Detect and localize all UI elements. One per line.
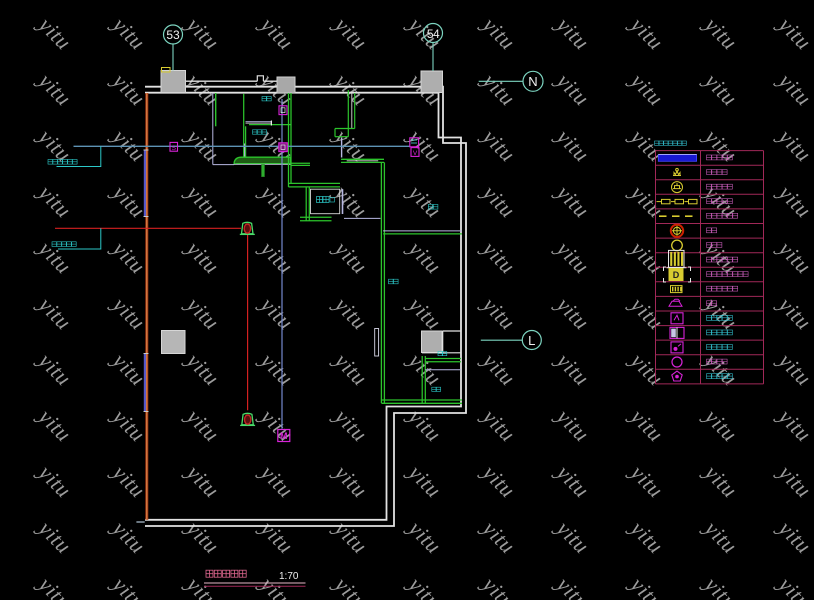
svg-text:yitu: yitu [33, 514, 77, 558]
svg-text:yitu: yitu [477, 11, 521, 55]
svg-text:D: D [673, 270, 680, 280]
svg-text:S: S [172, 145, 177, 152]
svg-text:yitu: yitu [33, 235, 77, 279]
svg-text:M: M [280, 431, 288, 441]
svg-text:yitu: yitu [625, 570, 669, 600]
svg-text:yitu: yitu [699, 67, 743, 111]
svg-text:yitu: yitu [329, 458, 373, 502]
svg-text:yitu: yitu [625, 458, 669, 502]
svg-text:yitu: yitu [699, 235, 743, 279]
svg-text:yitu: yitu [329, 291, 373, 335]
svg-text:53: 53 [166, 28, 180, 42]
svg-text:yitu: yitu [551, 123, 595, 167]
svg-text:yitu: yitu [255, 346, 299, 390]
svg-text:yitu: yitu [107, 570, 151, 600]
svg-text:yitu: yitu [403, 514, 447, 558]
svg-text:yitu: yitu [403, 123, 447, 167]
svg-text:yitu: yitu [403, 11, 447, 55]
svg-text:1:70: 1:70 [279, 571, 299, 582]
svg-text:yitu: yitu [33, 346, 77, 390]
svg-text:yitu: yitu [773, 402, 814, 446]
svg-text:yitu: yitu [107, 235, 151, 279]
svg-text:yitu: yitu [107, 458, 151, 502]
svg-text:yitu: yitu [403, 402, 447, 446]
svg-text:yitu: yitu [477, 235, 521, 279]
svg-text:yitu: yitu [773, 346, 814, 390]
svg-text:yitu: yitu [255, 179, 299, 223]
svg-text:yitu: yitu [107, 67, 151, 111]
svg-text:yitu: yitu [403, 179, 447, 223]
svg-text:yitu: yitu [625, 235, 669, 279]
svg-text:yitu: yitu [329, 570, 373, 600]
svg-text:yitu: yitu [551, 291, 595, 335]
svg-text:yitu: yitu [551, 402, 595, 446]
svg-text:yitu: yitu [551, 570, 595, 600]
svg-text:yitu: yitu [477, 402, 521, 446]
svg-text:yitu: yitu [329, 514, 373, 558]
svg-text:yitu: yitu [329, 235, 373, 279]
svg-text:yitu: yitu [329, 67, 373, 111]
svg-text:yitu: yitu [477, 570, 521, 600]
svg-text:yitu: yitu [477, 291, 521, 335]
svg-text:yitu: yitu [181, 402, 225, 446]
svg-text:yitu: yitu [33, 179, 77, 223]
svg-text:yitu: yitu [773, 67, 814, 111]
svg-text:yitu: yitu [33, 570, 77, 600]
svg-text:yitu: yitu [773, 570, 814, 600]
svg-text:yitu: yitu [403, 291, 447, 335]
svg-text:yitu: yitu [329, 11, 373, 55]
svg-text:yitu: yitu [699, 291, 743, 335]
svg-text:yitu: yitu [773, 514, 814, 558]
svg-text:yitu: yitu [551, 11, 595, 55]
svg-text:yitu: yitu [773, 458, 814, 502]
svg-text:yitu: yitu [773, 123, 814, 167]
svg-text:yitu: yitu [33, 11, 77, 55]
svg-text:54: 54 [427, 27, 440, 41]
svg-text:yitu: yitu [255, 291, 299, 335]
svg-text:yitu: yitu [477, 514, 521, 558]
svg-text:yitu: yitu [699, 458, 743, 502]
svg-text:yitu: yitu [551, 67, 595, 111]
svg-text:yitu: yitu [625, 11, 669, 55]
svg-text:yitu: yitu [551, 179, 595, 223]
svg-text:yitu: yitu [699, 402, 743, 446]
svg-text:yitu: yitu [551, 458, 595, 502]
svg-text:N: N [528, 74, 537, 89]
svg-text:yitu: yitu [255, 514, 299, 558]
svg-text:yitu: yitu [403, 235, 447, 279]
svg-text:yitu: yitu [181, 123, 225, 167]
svg-text:yitu: yitu [181, 346, 225, 390]
svg-text:yitu: yitu [551, 514, 595, 558]
svg-text:yitu: yitu [403, 570, 447, 600]
svg-text:yitu: yitu [181, 179, 225, 223]
svg-text:yitu: yitu [699, 570, 743, 600]
svg-text:yitu: yitu [625, 291, 669, 335]
svg-text:V: V [413, 150, 418, 157]
svg-text:yitu: yitu [625, 514, 669, 558]
svg-text:yitu: yitu [181, 458, 225, 502]
svg-text:yitu: yitu [625, 67, 669, 111]
svg-text:yitu: yitu [773, 235, 814, 279]
svg-text:yitu: yitu [329, 179, 373, 223]
svg-text:yitu: yitu [33, 123, 77, 167]
svg-text:yitu: yitu [33, 67, 77, 111]
svg-text:yitu: yitu [477, 67, 521, 111]
svg-text:yitu: yitu [773, 11, 814, 55]
svg-text:yitu: yitu [255, 402, 299, 446]
svg-text:yitu: yitu [33, 458, 77, 502]
svg-text:yitu: yitu [255, 11, 299, 55]
svg-text:yitu: yitu [33, 402, 77, 446]
svg-text:yitu: yitu [699, 11, 743, 55]
svg-text:yitu: yitu [699, 514, 743, 558]
svg-text:yitu: yitu [181, 67, 225, 111]
svg-text:yitu: yitu [255, 458, 299, 502]
svg-text:yitu: yitu [551, 346, 595, 390]
svg-text:yitu: yitu [329, 402, 373, 446]
svg-text:yitu: yitu [181, 514, 225, 558]
svg-text:yitu: yitu [773, 179, 814, 223]
svg-text:yitu: yitu [477, 123, 521, 167]
svg-text:yitu: yitu [33, 291, 77, 335]
svg-text:yitu: yitu [477, 346, 521, 390]
svg-text:yitu: yitu [329, 346, 373, 390]
svg-text:L: L [528, 333, 535, 348]
svg-text:yitu: yitu [477, 179, 521, 223]
svg-text:yitu: yitu [107, 11, 151, 55]
svg-text:yitu: yitu [107, 514, 151, 558]
svg-text:yitu: yitu [551, 235, 595, 279]
svg-text:yitu: yitu [181, 235, 225, 279]
svg-text:yitu: yitu [255, 235, 299, 279]
svg-text:yitu: yitu [107, 291, 151, 335]
svg-text:yitu: yitu [181, 11, 225, 55]
svg-text:yitu: yitu [181, 291, 225, 335]
svg-text:yitu: yitu [773, 291, 814, 335]
svg-text:yitu: yitu [477, 458, 521, 502]
svg-text:yitu: yitu [403, 458, 447, 502]
svg-text:yitu: yitu [625, 402, 669, 446]
